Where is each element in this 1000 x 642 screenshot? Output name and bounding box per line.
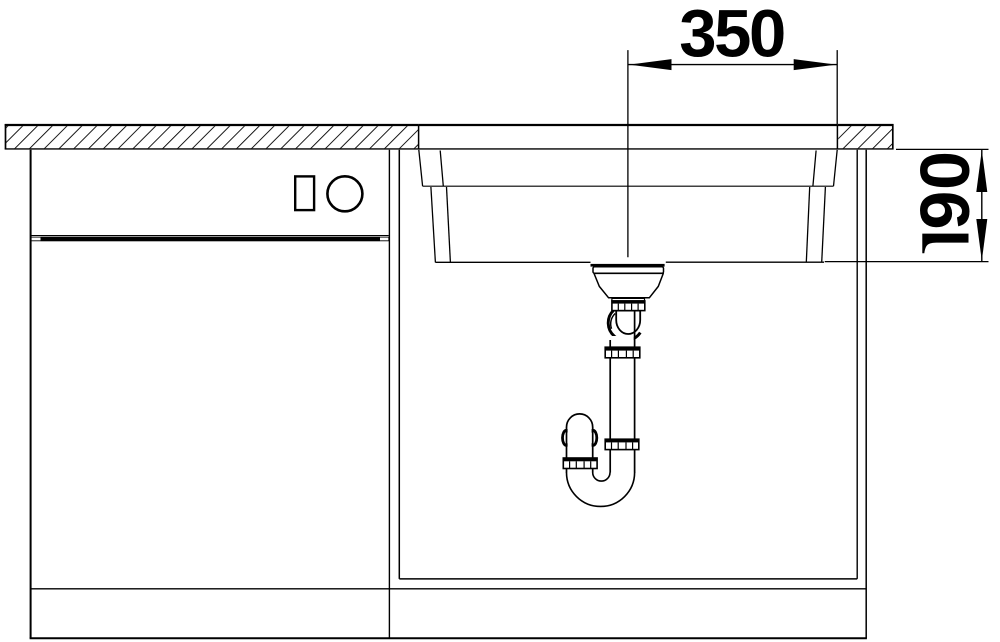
- svg-text:90: 90: [906, 150, 984, 229]
- svg-text:350: 350: [679, 0, 784, 72]
